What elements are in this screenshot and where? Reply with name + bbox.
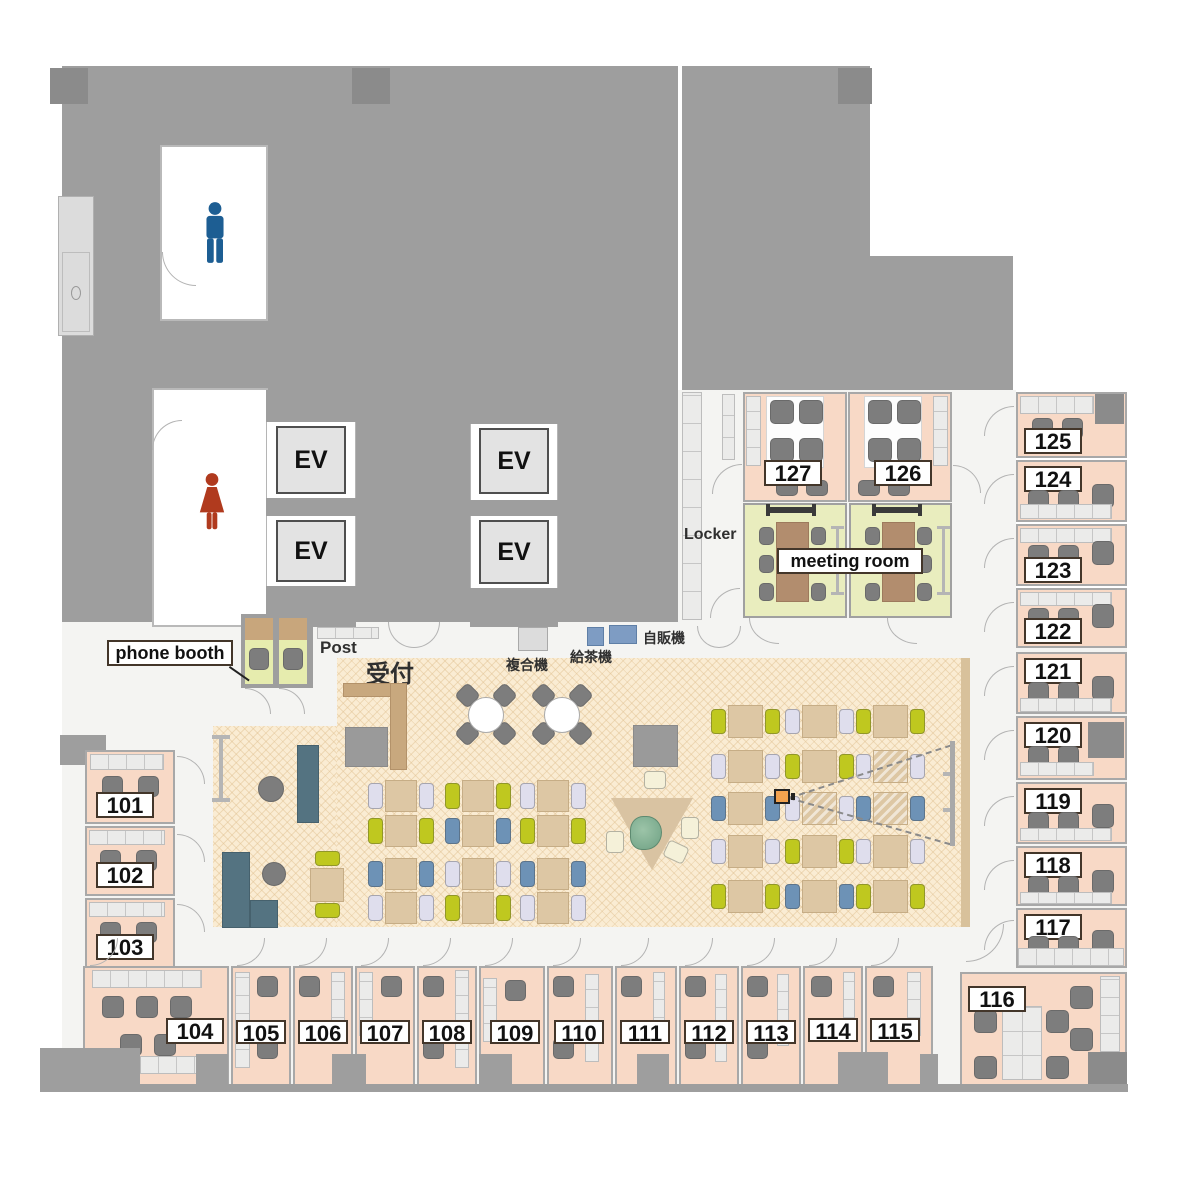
chair	[496, 783, 511, 809]
copier-label: 複合機	[506, 655, 548, 675]
pillar	[332, 1054, 366, 1086]
post-label: Post	[320, 638, 357, 658]
table	[873, 880, 908, 913]
desk	[90, 754, 164, 770]
chair	[170, 996, 192, 1018]
vending-machine-icon	[609, 625, 637, 644]
pillar	[196, 1054, 228, 1086]
chair	[505, 980, 526, 1001]
shaft-wall	[470, 390, 558, 424]
chair	[770, 400, 794, 424]
copier-icon	[518, 627, 548, 651]
table	[462, 858, 494, 890]
chair	[520, 818, 535, 844]
table	[462, 815, 494, 847]
chair	[606, 831, 624, 853]
chair	[520, 783, 535, 809]
desk	[92, 970, 202, 988]
round-table	[544, 697, 580, 733]
phone-booth-label: phone booth	[107, 640, 233, 666]
room-label-126: 126	[874, 460, 932, 486]
shaft-wall	[266, 390, 356, 422]
table	[728, 750, 763, 783]
chair	[1092, 870, 1114, 894]
chair	[839, 754, 854, 779]
room-label-114: 114	[808, 1018, 858, 1042]
chair	[419, 818, 434, 844]
whiteboard-icon	[875, 507, 921, 513]
room-label-109: 109	[490, 1020, 540, 1044]
reception-desk	[345, 727, 388, 767]
table	[873, 792, 908, 825]
room-label-106: 106	[298, 1020, 348, 1044]
room-label-112: 112	[684, 1020, 734, 1044]
chair	[571, 861, 586, 887]
chair	[553, 976, 574, 997]
desk	[1020, 504, 1112, 519]
chair	[765, 884, 780, 909]
shaft-wall	[266, 498, 356, 516]
chair	[644, 771, 666, 789]
chair	[856, 839, 871, 864]
table	[462, 780, 494, 812]
chair	[1046, 1010, 1069, 1033]
meeting-room-label: meeting room	[777, 548, 923, 574]
desk	[89, 902, 165, 917]
chair	[381, 976, 402, 997]
table	[873, 750, 908, 783]
chair	[368, 818, 383, 844]
room-label-115: 115	[870, 1018, 920, 1042]
desk	[1020, 892, 1112, 904]
chair	[974, 1056, 997, 1079]
chair	[1070, 986, 1093, 1009]
chair	[419, 783, 434, 809]
desk	[1020, 762, 1094, 776]
screen-foot	[943, 808, 950, 812]
chair	[571, 895, 586, 921]
booth-chair	[283, 648, 303, 670]
table	[385, 780, 417, 812]
desk	[746, 396, 761, 466]
whiteboard-icon	[872, 504, 876, 516]
table	[310, 868, 344, 902]
table	[385, 815, 417, 847]
chair	[419, 895, 434, 921]
chair	[315, 903, 340, 918]
chair	[759, 583, 774, 601]
chair	[681, 817, 699, 839]
chair	[799, 438, 823, 462]
table	[728, 705, 763, 738]
pillar	[920, 1054, 938, 1084]
table	[462, 892, 494, 924]
whiteboard-icon	[812, 504, 816, 516]
pillar	[479, 1054, 512, 1086]
table	[728, 835, 763, 868]
chair	[785, 884, 800, 909]
desk	[1020, 828, 1112, 841]
pillar	[352, 68, 390, 104]
chair	[917, 583, 932, 601]
chair	[711, 754, 726, 779]
room-label-125: 125	[1024, 428, 1082, 454]
desk	[933, 396, 948, 466]
whiteboard-stand	[212, 798, 230, 802]
desk	[715, 974, 727, 1062]
woman-icon	[194, 472, 230, 540]
chair	[1046, 1056, 1069, 1079]
whiteboard-stand	[212, 735, 230, 739]
vending-machine-label: 自販機	[643, 628, 685, 648]
office-floorplan: EV EV EV EV 受付 phone booth Post 複合機 給茶機 …	[0, 0, 1181, 1181]
room-label-105: 105	[236, 1020, 286, 1044]
chair	[770, 438, 794, 462]
screen-stand	[937, 592, 950, 595]
chair	[571, 783, 586, 809]
desk	[1018, 948, 1124, 966]
shaft-wall	[470, 588, 558, 627]
chair	[839, 709, 854, 734]
desk	[89, 830, 165, 845]
chair	[785, 754, 800, 779]
desk	[1002, 1006, 1042, 1080]
chair	[759, 527, 774, 545]
chair	[1092, 541, 1114, 565]
desk	[1020, 396, 1094, 414]
sofa	[297, 745, 319, 823]
pillar	[40, 1048, 140, 1088]
phone-booth	[279, 618, 307, 640]
chair	[257, 976, 278, 997]
chair	[621, 976, 642, 997]
phone-booth	[245, 618, 273, 640]
chair	[865, 527, 880, 545]
chair	[419, 861, 434, 887]
room-label-102: 102	[96, 862, 154, 888]
chair	[1092, 676, 1114, 700]
chair	[520, 895, 535, 921]
booth-chair	[249, 648, 269, 670]
cabinet	[722, 394, 735, 460]
workspace-wall	[961, 658, 970, 927]
chair	[897, 438, 921, 462]
room-label-111: 111	[620, 1020, 670, 1044]
table	[802, 750, 837, 783]
chair	[445, 783, 460, 809]
room-label-101: 101	[96, 792, 154, 818]
table	[537, 858, 569, 890]
elevator: EV	[276, 520, 346, 582]
sofa	[222, 852, 250, 928]
room-label-123: 123	[1024, 557, 1082, 583]
whiteboard-icon	[766, 504, 770, 516]
chair	[711, 884, 726, 909]
locker-label: Locker	[684, 526, 736, 544]
cabinet	[633, 725, 678, 767]
chair	[685, 976, 706, 997]
table	[537, 892, 569, 924]
room-label-108: 108	[422, 1020, 472, 1044]
room-label-120: 120	[1024, 722, 1082, 748]
chair	[839, 884, 854, 909]
screen-stand	[831, 592, 844, 595]
chair	[765, 709, 780, 734]
table	[385, 858, 417, 890]
chair	[496, 895, 511, 921]
pillar	[838, 68, 872, 104]
chair	[711, 796, 726, 821]
room-label-122: 122	[1024, 618, 1082, 644]
tea-machine-label: 給茶機	[570, 647, 612, 667]
chair	[711, 839, 726, 864]
screen-stand	[942, 528, 945, 594]
room-label-116: 116	[968, 986, 1026, 1012]
screen-stand	[831, 526, 844, 529]
elevator: EV	[479, 520, 549, 584]
chair	[799, 400, 823, 424]
chair	[368, 895, 383, 921]
cabinet	[1088, 722, 1124, 758]
room-label-104: 104	[166, 1018, 224, 1044]
room-label-107: 107	[360, 1020, 410, 1044]
chair	[496, 818, 511, 844]
chair	[1092, 804, 1114, 828]
room-label-118: 118	[1024, 852, 1082, 878]
chair	[839, 839, 854, 864]
chair	[368, 783, 383, 809]
chair	[868, 438, 892, 462]
elevator: EV	[276, 426, 346, 494]
stool-table	[262, 862, 286, 886]
table	[802, 880, 837, 913]
pillar	[1088, 1052, 1127, 1086]
chair	[1070, 1028, 1093, 1051]
chair	[315, 851, 340, 866]
wall-zone	[682, 256, 1013, 390]
chair	[445, 895, 460, 921]
desk	[455, 970, 469, 1068]
desk	[1100, 976, 1120, 1052]
chair	[765, 839, 780, 864]
chair	[910, 796, 925, 821]
table	[537, 815, 569, 847]
table	[385, 892, 417, 924]
elevator: EV	[479, 428, 549, 494]
desk	[1020, 698, 1112, 712]
projector-lens	[791, 793, 795, 800]
desk	[585, 974, 599, 1062]
table	[728, 880, 763, 913]
pillar	[1095, 394, 1124, 424]
chair	[520, 861, 535, 887]
screen-foot	[943, 772, 950, 776]
room-label-127: 127	[764, 460, 822, 486]
screen-stand	[937, 526, 950, 529]
stool-table	[258, 776, 284, 802]
projector-icon	[774, 789, 790, 804]
room-label-124: 124	[1024, 466, 1082, 492]
chair	[811, 976, 832, 997]
chair	[445, 818, 460, 844]
chair	[102, 996, 124, 1018]
chair	[785, 839, 800, 864]
chair	[747, 976, 768, 997]
chair	[785, 709, 800, 734]
chair	[910, 884, 925, 909]
table	[873, 835, 908, 868]
reception-counter	[390, 683, 407, 770]
pillar	[50, 68, 88, 104]
chair	[856, 709, 871, 734]
shaft-handle	[71, 286, 81, 300]
chair	[856, 884, 871, 909]
chair	[765, 754, 780, 779]
chair	[496, 861, 511, 887]
room-label-119: 119	[1024, 788, 1082, 814]
chair	[571, 818, 586, 844]
chair	[873, 976, 894, 997]
chair	[368, 861, 383, 887]
table	[802, 835, 837, 868]
chair	[865, 583, 880, 601]
chair	[811, 527, 826, 545]
round-table	[468, 697, 504, 733]
projection-screen	[950, 741, 955, 846]
man-icon	[199, 201, 231, 265]
room-label-113: 113	[746, 1020, 796, 1044]
chair	[136, 996, 158, 1018]
chair	[917, 527, 932, 545]
chair	[759, 555, 774, 573]
shaft-wall	[470, 500, 558, 516]
room-label-121: 121	[1024, 658, 1082, 684]
table	[802, 705, 837, 738]
locker-cabinets	[682, 392, 702, 620]
whiteboard-icon	[918, 504, 922, 516]
chair	[910, 839, 925, 864]
chair	[711, 709, 726, 734]
pillar	[637, 1054, 669, 1086]
chair	[868, 400, 892, 424]
chair	[423, 976, 444, 997]
pillar	[838, 1052, 888, 1086]
table	[873, 705, 908, 738]
chair	[910, 709, 925, 734]
whiteboard-stand	[219, 737, 223, 801]
table	[728, 792, 763, 825]
chair	[974, 1010, 997, 1033]
tea-machine-icon	[587, 627, 604, 646]
whiteboard-icon	[769, 507, 815, 513]
chair	[299, 976, 320, 997]
chair	[1092, 604, 1114, 628]
chair	[445, 861, 460, 887]
table	[537, 780, 569, 812]
chair	[897, 400, 921, 424]
room-label-110: 110	[554, 1020, 604, 1044]
chair	[811, 583, 826, 601]
sofa	[250, 900, 278, 928]
